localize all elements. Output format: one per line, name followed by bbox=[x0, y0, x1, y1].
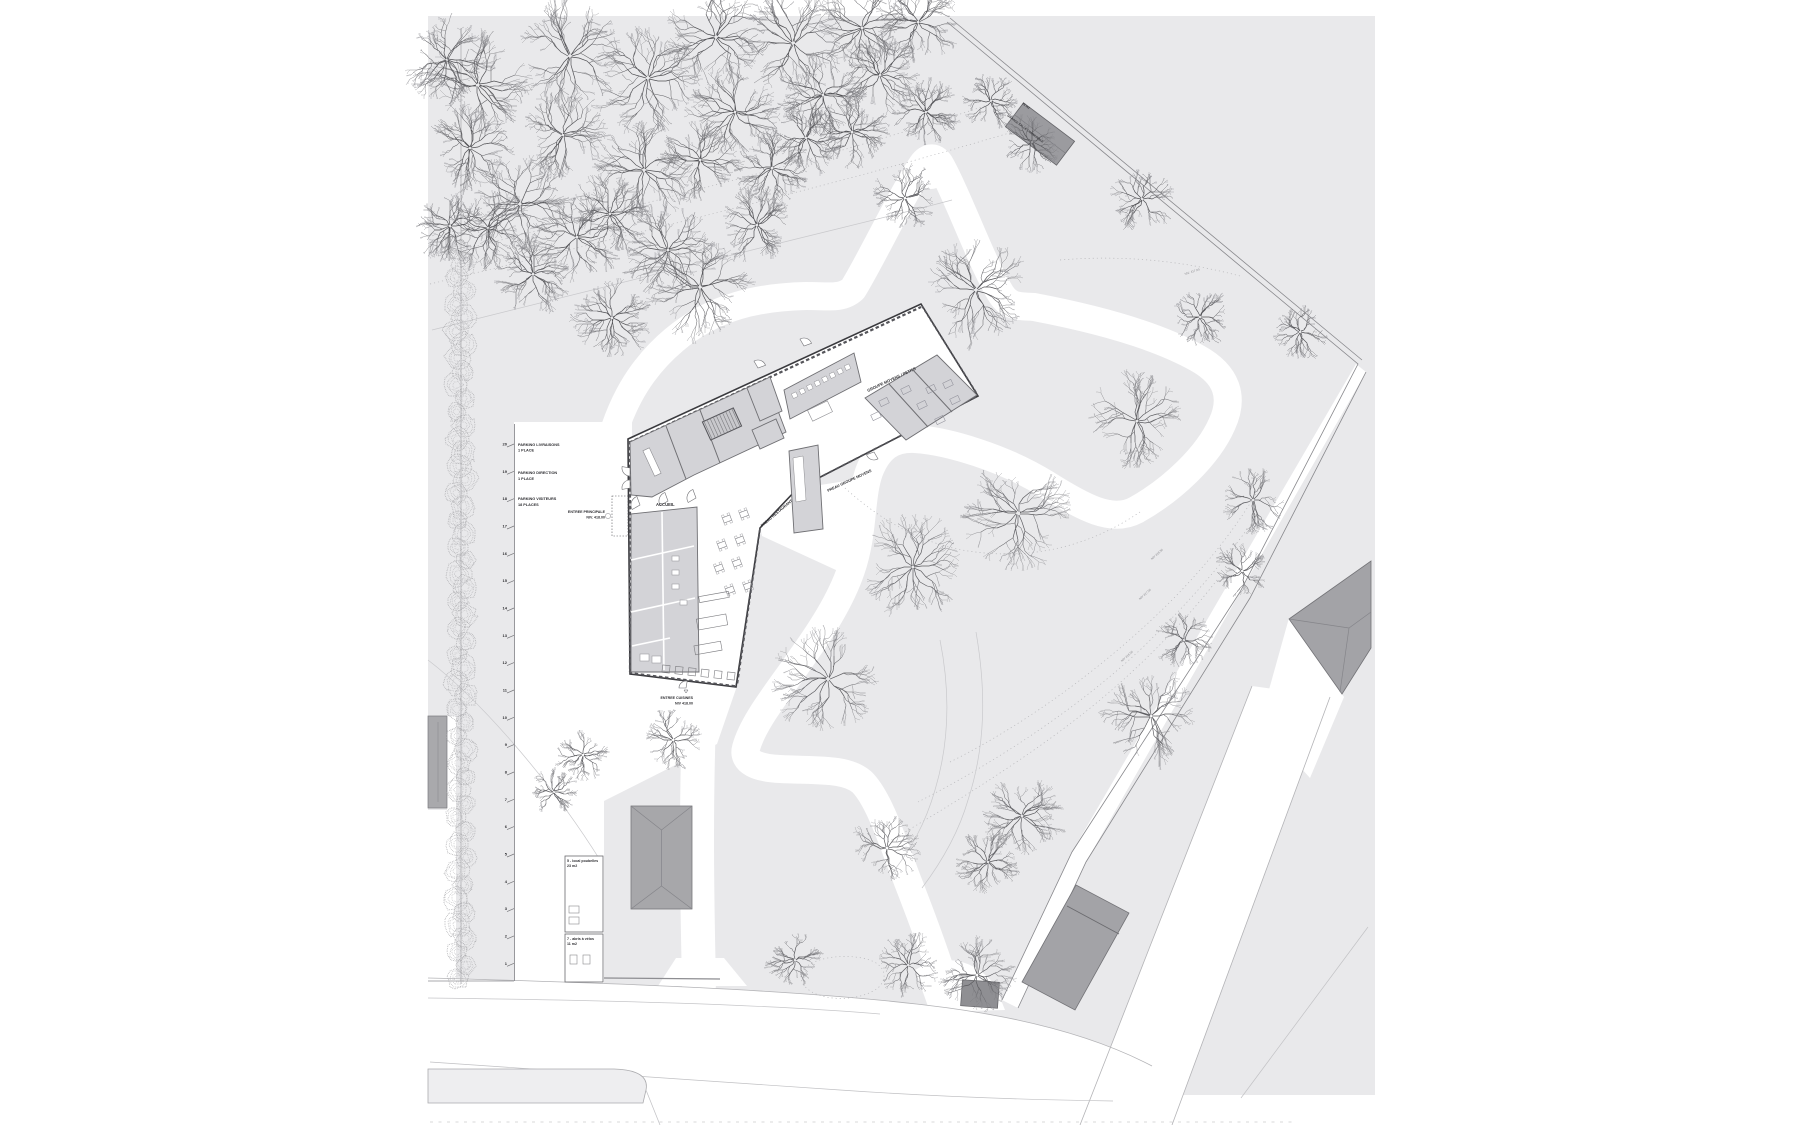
svg-text:23 m2: 23 m2 bbox=[567, 864, 577, 868]
svg-text:PARKING VISITEURS: PARKING VISITEURS bbox=[518, 497, 557, 501]
svg-text:11 m2: 11 m2 bbox=[567, 942, 577, 946]
svg-text:PARKING DIRECTION: PARKING DIRECTION bbox=[518, 471, 557, 475]
svg-text:12: 12 bbox=[503, 660, 508, 665]
svg-text:20: 20 bbox=[503, 442, 508, 447]
svg-text:7 - abris à vélos: 7 - abris à vélos bbox=[567, 937, 594, 941]
svg-text:17: 17 bbox=[503, 524, 508, 529]
svg-text:16: 16 bbox=[503, 551, 508, 556]
svg-text:ACCUEIL: ACCUEIL bbox=[656, 502, 675, 507]
svg-text:14: 14 bbox=[503, 606, 508, 611]
svg-text:NIV. 418.00: NIV. 418.00 bbox=[586, 516, 605, 520]
svg-text:1 PLACE: 1 PLACE bbox=[518, 449, 535, 453]
svg-text:10: 10 bbox=[503, 715, 508, 720]
svg-text:15: 15 bbox=[503, 578, 508, 583]
svg-text:PARKING LIVRAISONS: PARKING LIVRAISONS bbox=[518, 443, 560, 447]
svg-text:19: 19 bbox=[503, 469, 508, 474]
svg-text:18: 18 bbox=[503, 496, 508, 501]
svg-text:18 PLACES: 18 PLACES bbox=[518, 503, 539, 507]
svg-text:5 - local poubelles: 5 - local poubelles bbox=[567, 859, 598, 863]
svg-text:NIV 418.00: NIV 418.00 bbox=[675, 702, 693, 706]
svg-text:ENTREE CUISINES: ENTREE CUISINES bbox=[660, 696, 693, 700]
svg-text:13: 13 bbox=[503, 633, 508, 638]
svg-text:ENTREE PRINCIPALE: ENTREE PRINCIPALE bbox=[568, 510, 606, 514]
svg-text:1 PLACE: 1 PLACE bbox=[518, 477, 535, 481]
